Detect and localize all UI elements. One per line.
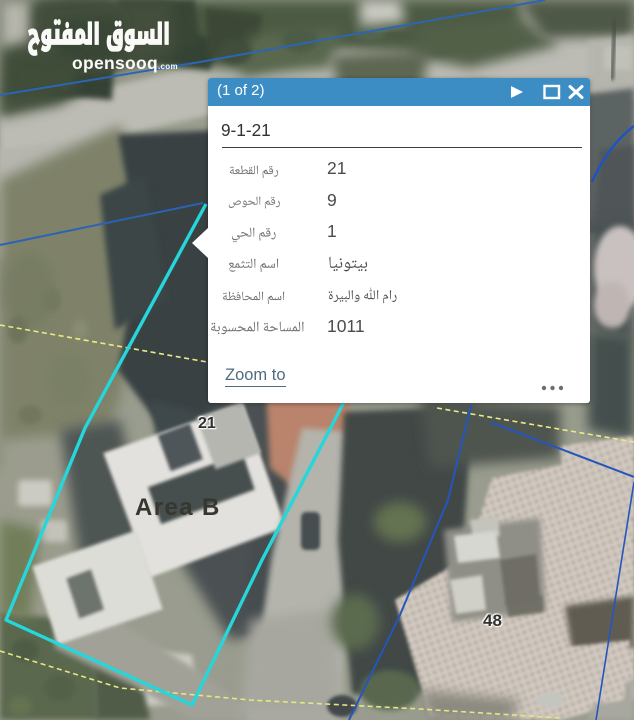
svg-text:opensooq.com: opensooq.com [72, 53, 178, 73]
